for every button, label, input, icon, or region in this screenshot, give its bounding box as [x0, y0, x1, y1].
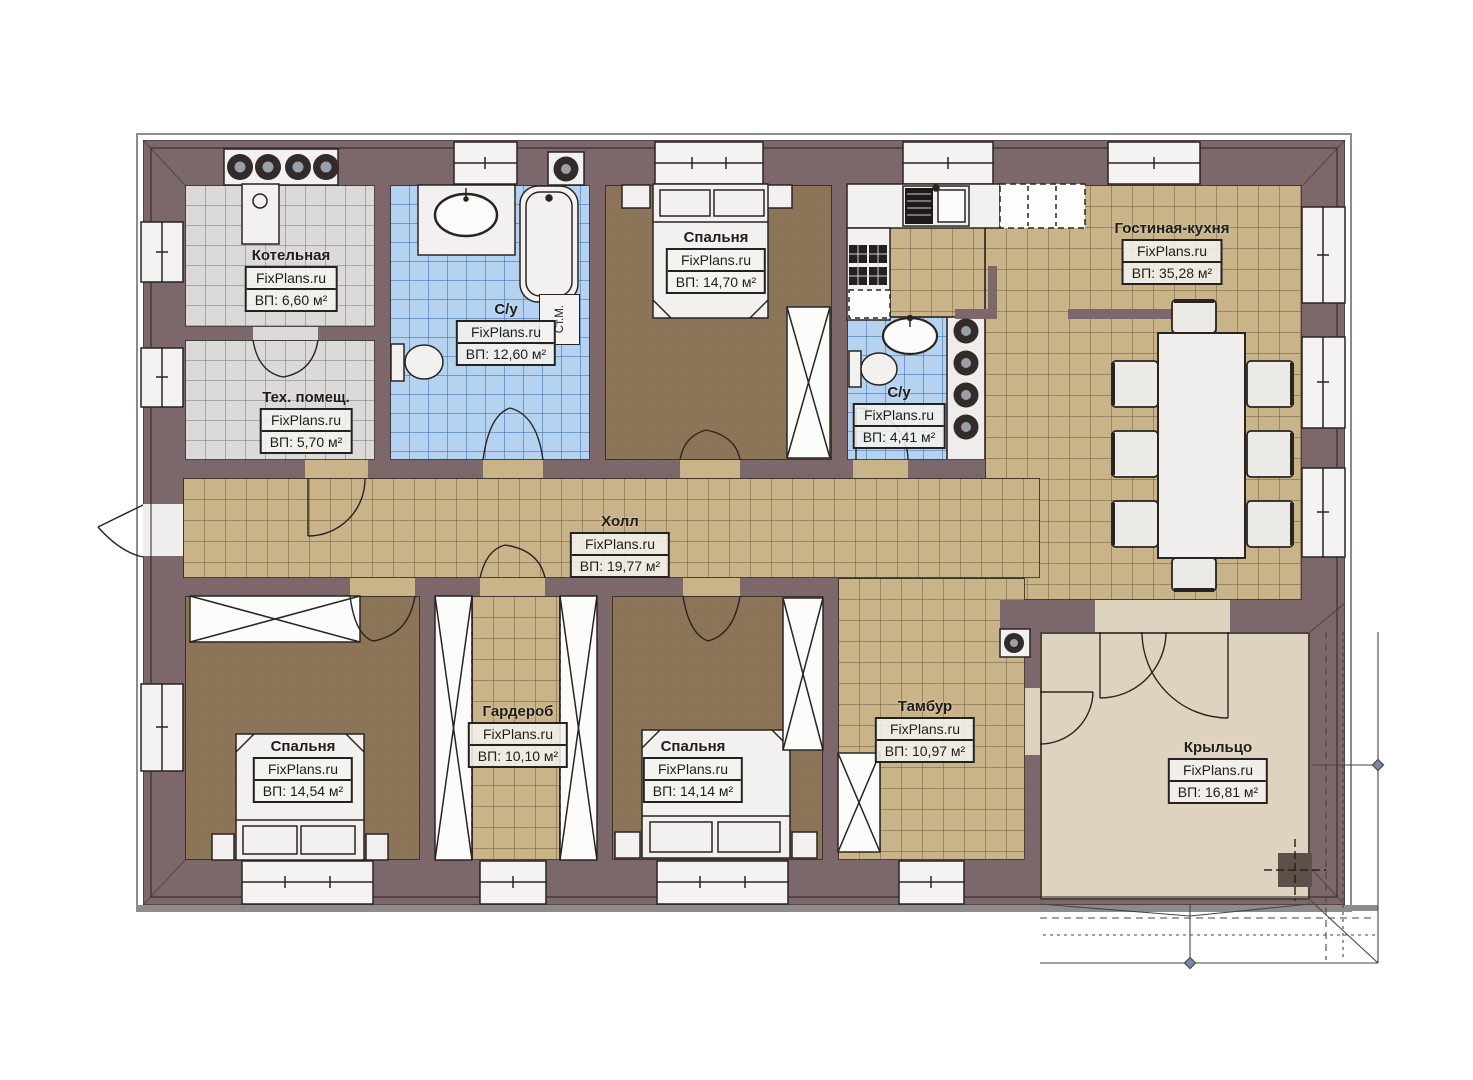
door-living-porch-2 [1142, 632, 1228, 718]
door-boiler-tech [253, 340, 318, 377]
door-bedroom-mid [683, 596, 740, 641]
room-name: Крыльцо [1168, 739, 1268, 756]
room-info-box: FixPlans.ru ВП: 19,77 м² [570, 532, 670, 578]
window-top-4 [1108, 142, 1200, 184]
room-name: Гардероб [468, 703, 568, 720]
chair-bottom [1172, 558, 1216, 591]
room-label-porch: Крыльцо FixPlans.ru ВП: 16,81 м² [1168, 739, 1268, 804]
brand-watermark: FixPlans.ru [668, 250, 764, 270]
room-info-box: FixPlans.ru ВП: 12,60 м² [456, 320, 556, 366]
door-tech-hall [308, 478, 365, 536]
brand-watermark: FixPlans.ru [255, 759, 351, 779]
room-name: Тех. помещ. [260, 389, 353, 406]
room-name: Холл [570, 513, 670, 530]
flue-vents [224, 149, 584, 185]
chair-left-3 [1112, 501, 1158, 547]
wardrobe-x-bedtop [787, 307, 830, 458]
room-info-box: FixPlans.ru ВП: 6,60 м² [245, 266, 338, 312]
door-bath1 [483, 408, 543, 460]
room-label-hall: Холл FixPlans.ru ВП: 19,77 м² [570, 513, 670, 578]
room-name: Спальня [253, 738, 353, 755]
sink-bowl [938, 190, 965, 222]
room-info-box: FixPlans.ru ВП: 35,28 м² [1122, 239, 1222, 285]
room-info-box: FixPlans.ru ВП: 14,70 м² [666, 248, 766, 294]
wardrobe-x-bedmid [783, 598, 823, 750]
toilet-icon [405, 345, 443, 379]
chair-right-2 [1247, 431, 1293, 477]
pillow [660, 190, 710, 216]
room-name: Спальня [643, 738, 743, 755]
riser-pipes [954, 319, 979, 440]
nightstand [792, 832, 817, 858]
boiler-unit [242, 184, 279, 244]
window-right-3 [1302, 468, 1345, 557]
room-label-teh: Тех. помещ. FixPlans.ru ВП: 5,70 м² [260, 389, 353, 454]
window-bottom-3 [657, 861, 788, 904]
door-bedroom-top [680, 430, 740, 460]
room-area: ВП: 14,54 м² [255, 779, 351, 801]
room-label-su2: С/у FixPlans.ru ВП: 4,41 м² [853, 384, 946, 449]
chair-right-1 [1247, 361, 1293, 407]
lower-cabinet-dashed [849, 290, 890, 318]
wardrobe-x-bedleft [190, 596, 360, 642]
room-info-box: FixPlans.ru ВП: 10,10 м² [468, 722, 568, 768]
wardrobe-x-left [435, 596, 472, 860]
room-name: Тамбур [875, 698, 975, 715]
window-left-2 [141, 348, 183, 407]
chair-left-1 [1112, 361, 1158, 407]
toilet2-icon [861, 353, 897, 385]
nightstand [366, 834, 388, 860]
wardrobe-x-tambour [838, 753, 880, 852]
floor-plan: Ст.М. Котельная FixPlans.ru ВП: 6,60 м² … [0, 0, 1473, 1080]
room-area: ВП: 6,60 м² [247, 288, 336, 310]
pillow [243, 826, 297, 854]
window-right-2 [1302, 337, 1345, 428]
nightstand [622, 185, 650, 208]
nightstand [615, 832, 640, 858]
pillow [718, 822, 780, 852]
kitchen-fixtures [847, 184, 1085, 320]
room-area: ВП: 10,97 м² [877, 739, 973, 761]
upper-cabinets-dashed [1000, 184, 1085, 228]
window-left-1 [141, 222, 183, 282]
roof-node-marker [1372, 759, 1383, 770]
chair-left-2 [1112, 431, 1158, 477]
nightstand [212, 834, 234, 860]
window-top-2 [655, 142, 763, 184]
window-bottom-4 [899, 861, 964, 904]
room-info-box: FixPlans.ru ВП: 4,41 м² [853, 403, 946, 449]
toilet2-tank [849, 351, 861, 387]
room-name: Спальня [666, 229, 766, 246]
room-label-living: Гостиная-кухня FixPlans.ru ВП: 35,28 м² [1115, 220, 1230, 285]
window-top-1 [454, 142, 517, 184]
chimney-marker [1264, 839, 1326, 901]
room-area: ВП: 10,10 м² [470, 744, 566, 766]
door-wardrobe [480, 545, 545, 578]
room-name: С/у [456, 301, 556, 318]
brand-watermark: FixPlans.ru [1124, 241, 1220, 261]
chair-right-3 [1247, 501, 1293, 547]
brand-watermark: FixPlans.ru [877, 719, 973, 739]
window-left-3 [141, 684, 183, 771]
ground-line [137, 905, 1378, 911]
brand-watermark: FixPlans.ru [1170, 760, 1266, 780]
chair-top [1172, 300, 1216, 333]
brand-watermark: FixPlans.ru [262, 410, 351, 430]
room-info-box: FixPlans.ru ВП: 14,14 м² [643, 757, 743, 803]
room-label-bed-left: Спальня FixPlans.ru ВП: 14,54 м² [253, 738, 353, 803]
room-label-tambur: Тамбур FixPlans.ru ВП: 10,97 м² [875, 698, 975, 763]
room-label-bedtop: Спальня FixPlans.ru ВП: 14,70 м² [666, 229, 766, 294]
door-tambour-porch [1040, 692, 1093, 744]
room-area: ВП: 4,41 м² [855, 425, 944, 447]
porch-details [1000, 629, 1326, 901]
roof-node-marker [1184, 957, 1195, 968]
brand-watermark: FixPlans.ru [572, 534, 668, 554]
brand-watermark: FixPlans.ru [247, 268, 336, 288]
room-area: ВП: 35,28 м² [1124, 261, 1220, 283]
brand-watermark: FixPlans.ru [470, 724, 566, 744]
room-label-wardrobe: Гардероб FixPlans.ru ВП: 10,10 м² [468, 703, 568, 768]
room-name: Гостиная-кухня [1115, 220, 1230, 237]
room-info-box: FixPlans.ru ВП: 16,81 м² [1168, 758, 1268, 804]
room-area: ВП: 16,81 м² [1170, 780, 1266, 802]
brand-watermark: FixPlans.ru [855, 405, 944, 425]
room-area: ВП: 5,70 м² [262, 430, 351, 452]
window-bottom-1 [242, 861, 373, 904]
window-right-1 [1302, 207, 1345, 303]
room-area: ВП: 14,14 м² [645, 779, 741, 801]
dish-rack-icon [905, 188, 933, 224]
brand-watermark: FixPlans.ru [458, 322, 554, 342]
pillow [714, 190, 764, 216]
plan-overlay [0, 0, 1473, 1080]
dining-table [1158, 333, 1245, 558]
bathtub-icon [520, 186, 578, 302]
window-bottom-2 [480, 861, 546, 904]
toilet-tank [391, 344, 404, 381]
room-name: С/у [853, 384, 946, 401]
room-label-kotelnaya: Котельная FixPlans.ru ВП: 6,60 м² [245, 247, 338, 312]
door-living-porch-1 [1100, 632, 1166, 698]
pillow [650, 822, 712, 852]
room-info-box: FixPlans.ru ВП: 10,97 м² [875, 717, 975, 763]
brand-watermark: FixPlans.ru [645, 759, 741, 779]
room-info-box: FixPlans.ru ВП: 5,70 м² [260, 408, 353, 454]
room-area: ВП: 19,77 м² [572, 554, 668, 576]
room-name: Котельная [245, 247, 338, 264]
room-label-su1: С/у FixPlans.ru ВП: 12,60 м² [456, 301, 556, 366]
window-top-3 [903, 142, 993, 184]
room-label-bed-mid: Спальня FixPlans.ru ВП: 14,14 м² [643, 738, 743, 803]
pillow [301, 826, 355, 854]
room-info-box: FixPlans.ru ВП: 14,54 м² [253, 757, 353, 803]
room-area: ВП: 14,70 м² [668, 270, 764, 292]
room-area: ВП: 12,60 м² [458, 342, 554, 364]
dining-set [1112, 300, 1293, 591]
